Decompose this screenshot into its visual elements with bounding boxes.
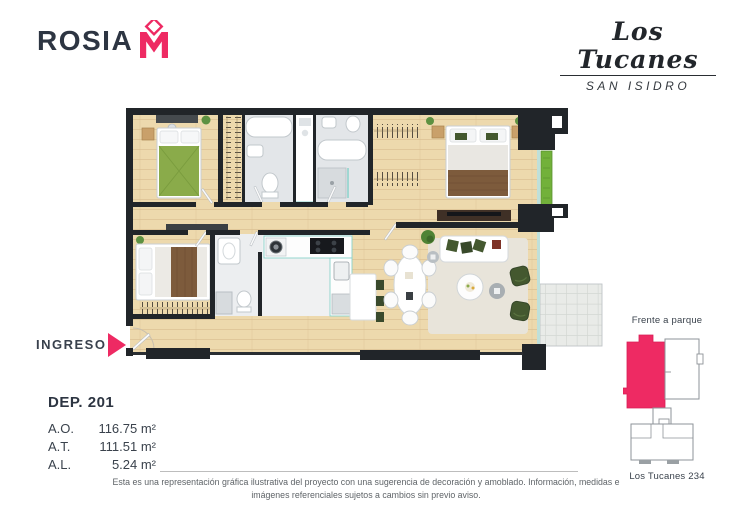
- pillar-bottom-right: [522, 344, 546, 370]
- keyplan-unit-highlight: [623, 335, 665, 408]
- toilet-tank: [262, 192, 278, 198]
- keyplan: Frente a parque Los Tucanes 234: [608, 315, 726, 482]
- pillar-top-right: [518, 108, 568, 150]
- ingreso-label: INGRESO: [36, 337, 106, 352]
- stool: [376, 312, 384, 322]
- fridge: [332, 294, 351, 314]
- area-value: 116.75 m²: [84, 419, 156, 437]
- desk: [156, 115, 198, 123]
- stool: [376, 280, 384, 290]
- plant: [426, 117, 434, 125]
- tv: [447, 212, 501, 216]
- brochure-page: ROSIA Los Tucanes SAN ISIDRO INGRESO DEP…: [0, 0, 730, 516]
- footer-divider: [160, 471, 578, 472]
- dining-table: [394, 255, 426, 315]
- brand-logo: ROSIA: [37, 24, 178, 62]
- toilet-tank: [237, 307, 251, 312]
- area-row: A.L. 5.24 m²: [48, 455, 156, 473]
- area-label: A.T.: [48, 437, 84, 455]
- cooktop: [310, 238, 344, 254]
- area-table: A.O. 116.75 m² A.T. 111.51 m² A.L. 5.24 …: [48, 419, 156, 473]
- island: [350, 274, 376, 320]
- toilet: [346, 116, 360, 132]
- area-row: A.O. 116.75 m²: [48, 419, 156, 437]
- plant: [136, 236, 144, 244]
- project-wordmark: Los Tucanes SAN ISIDRO: [552, 18, 724, 93]
- throw-pillow: [492, 240, 501, 249]
- project-name: Los Tucanes: [552, 18, 724, 74]
- keyplan-building: [623, 332, 711, 466]
- nightstand: [142, 128, 154, 140]
- wordmark-rule: [560, 75, 716, 76]
- area-label: A.L.: [48, 455, 84, 473]
- hall-console: [166, 224, 228, 230]
- area-row: A.T. 111.51 m²: [48, 437, 156, 455]
- ingreso-arrow-icon: [108, 333, 126, 357]
- footer-disclaimer: Esta es una representación gráfica ilust…: [102, 476, 630, 502]
- toilet: [237, 291, 251, 307]
- bathtub: [246, 117, 292, 137]
- bedroom-3: [136, 236, 210, 314]
- armchair: [510, 301, 531, 322]
- project-location: SAN ISIDRO: [552, 79, 724, 93]
- sink: [322, 117, 336, 128]
- duct-shaft: [295, 114, 315, 202]
- shower: [216, 292, 232, 314]
- brand-name: ROSIA: [37, 24, 133, 58]
- keyplan-top-label: Frente a parque: [608, 315, 726, 326]
- unit-info: DEP. 201 A.O. 116.75 m² A.T. 111.51 m² A…: [48, 394, 156, 473]
- kitchen-sink: [334, 262, 349, 280]
- logo-m-icon: [138, 20, 178, 62]
- sink: [247, 145, 263, 157]
- unit-id: DEP. 201: [48, 394, 156, 411]
- toilet: [262, 173, 278, 193]
- glass-wall: [537, 230, 540, 346]
- plant: [202, 116, 211, 125]
- terrace: [540, 284, 602, 346]
- vanity: [218, 238, 240, 264]
- area-label: A.O.: [48, 419, 84, 437]
- area-value: 5.24 m²: [84, 455, 156, 473]
- area-value: 111.51 m²: [84, 437, 156, 455]
- stool: [376, 296, 384, 306]
- nightstand: [432, 126, 444, 138]
- armchair: [509, 265, 531, 287]
- bathtub: [318, 140, 366, 160]
